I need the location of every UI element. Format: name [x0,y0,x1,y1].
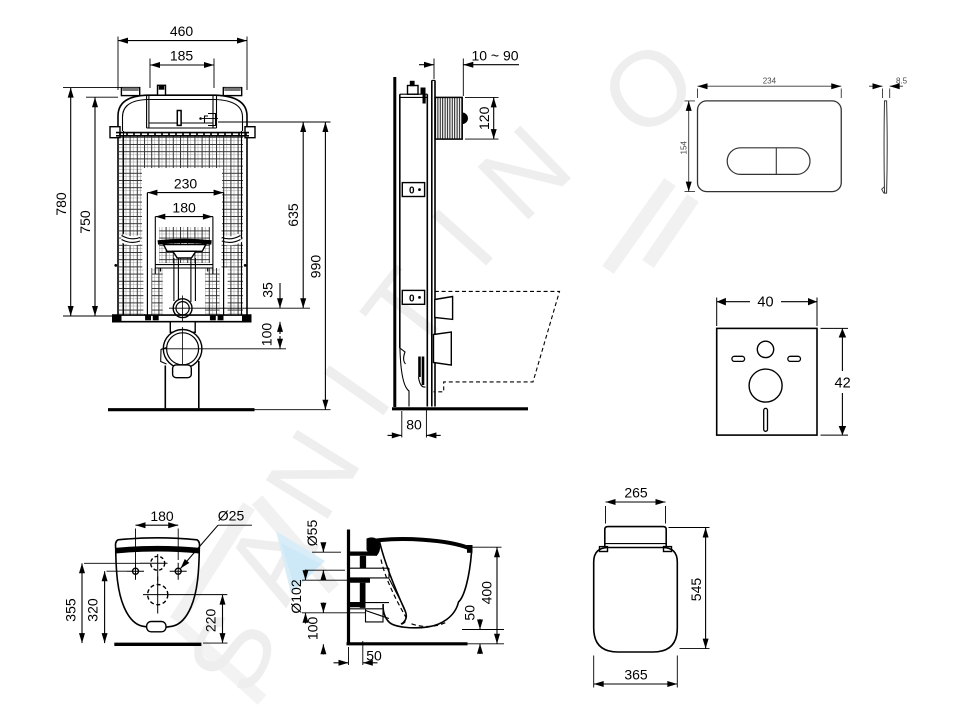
svg-text:750: 750 [77,210,93,234]
svg-text:10 ~ 90: 10 ~ 90 [471,48,518,64]
svg-text:42: 42 [835,376,851,392]
svg-text:50: 50 [366,648,382,664]
svg-text:35: 35 [260,282,276,298]
svg-text:355: 355 [63,598,79,622]
svg-text:0: 0 [409,186,415,197]
svg-text:460: 460 [170,23,194,39]
svg-text:220: 220 [203,609,219,633]
svg-text:I: I [300,345,414,437]
svg-text:100: 100 [305,617,321,641]
svg-text:230: 230 [174,176,198,192]
svg-text:545: 545 [688,578,704,602]
svg-text:265: 265 [624,485,648,501]
svg-text:990: 990 [308,255,324,279]
svg-text:154: 154 [680,141,689,155]
svg-text:8.5: 8.5 [896,77,908,86]
svg-text:120: 120 [476,106,492,130]
svg-text:365: 365 [624,667,648,683]
svg-text:S: S [165,596,302,709]
svg-text:400: 400 [479,581,495,605]
svg-text:185: 185 [170,48,194,64]
svg-text:50: 50 [462,605,478,621]
svg-text:635: 635 [285,203,301,227]
svg-text:100: 100 [259,323,275,347]
svg-text:Ø102: Ø102 [288,579,304,613]
svg-text:Ø25: Ø25 [218,508,245,524]
svg-text:40: 40 [757,295,773,311]
svg-text:O: O [580,17,718,161]
svg-text:0: 0 [409,293,415,304]
svg-text:234: 234 [763,77,777,86]
svg-text:320: 320 [85,598,101,622]
svg-text:780: 780 [53,192,69,216]
svg-text:180: 180 [150,508,174,524]
svg-text:180: 180 [172,200,196,216]
svg-text:Ø55: Ø55 [304,520,320,547]
svg-text:80: 80 [406,417,422,433]
